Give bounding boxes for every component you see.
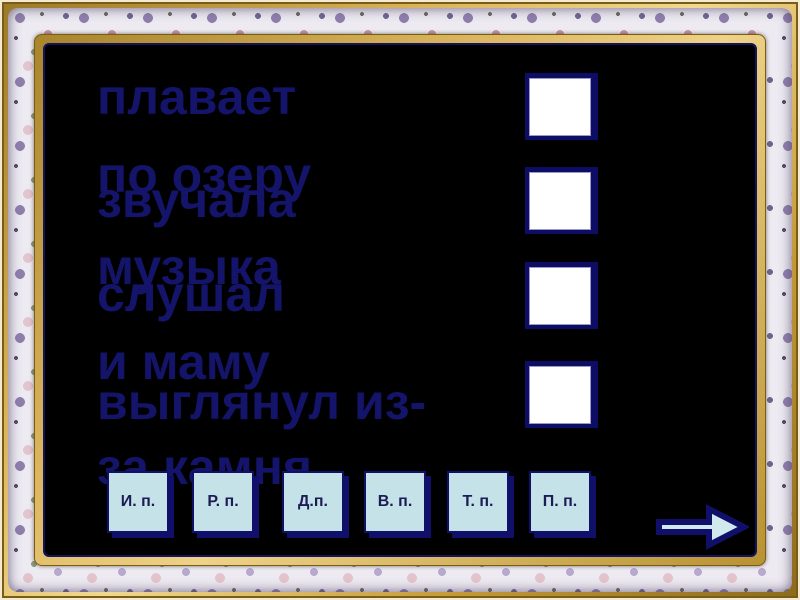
phrase-3-line-1: слушал	[97, 269, 285, 319]
decorative-frame-floral-band: плавает по озеру звучала музыка слушал и…	[8, 8, 792, 592]
case-button-prepositional[interactable]: П. п.	[529, 471, 591, 533]
phrase-2-line-1: звучала	[97, 175, 296, 225]
next-arrow-icon[interactable]	[655, 503, 749, 551]
case-button-accusative[interactable]: В. п.	[364, 471, 426, 533]
phrase-4-line-1: выглянул из-	[97, 377, 426, 427]
case-button-label: Р. п.	[207, 493, 238, 511]
decorative-frame-outer-gold: плавает по озеру звучала музыка слушал и…	[0, 0, 800, 600]
phrase-1-line-1: плавает	[97, 72, 296, 122]
answer-box-3[interactable]	[525, 262, 598, 329]
slide-content: плавает по озеру звучала музыка слушал и…	[43, 43, 757, 557]
case-button-label: И. п.	[121, 493, 156, 511]
slide: плавает по озеру звучала музыка слушал и…	[0, 0, 800, 600]
case-button-instrumental[interactable]: Т. п.	[447, 471, 509, 533]
case-button-label: В. п.	[378, 493, 413, 511]
case-button-label: Д.п.	[298, 493, 328, 511]
case-button-genitive[interactable]: Р. п.	[192, 471, 254, 533]
case-button-nominative[interactable]: И. п.	[107, 471, 169, 533]
answer-box-1[interactable]	[525, 73, 598, 140]
case-button-label: П. п.	[543, 493, 578, 511]
answer-box-4[interactable]	[525, 361, 598, 428]
decorative-frame-inner-gold: плавает по озеру звучала музыка слушал и…	[34, 34, 766, 566]
answer-box-2[interactable]	[525, 167, 598, 234]
case-button-dative[interactable]: Д.п.	[282, 471, 344, 533]
case-button-label: Т. п.	[463, 493, 494, 511]
